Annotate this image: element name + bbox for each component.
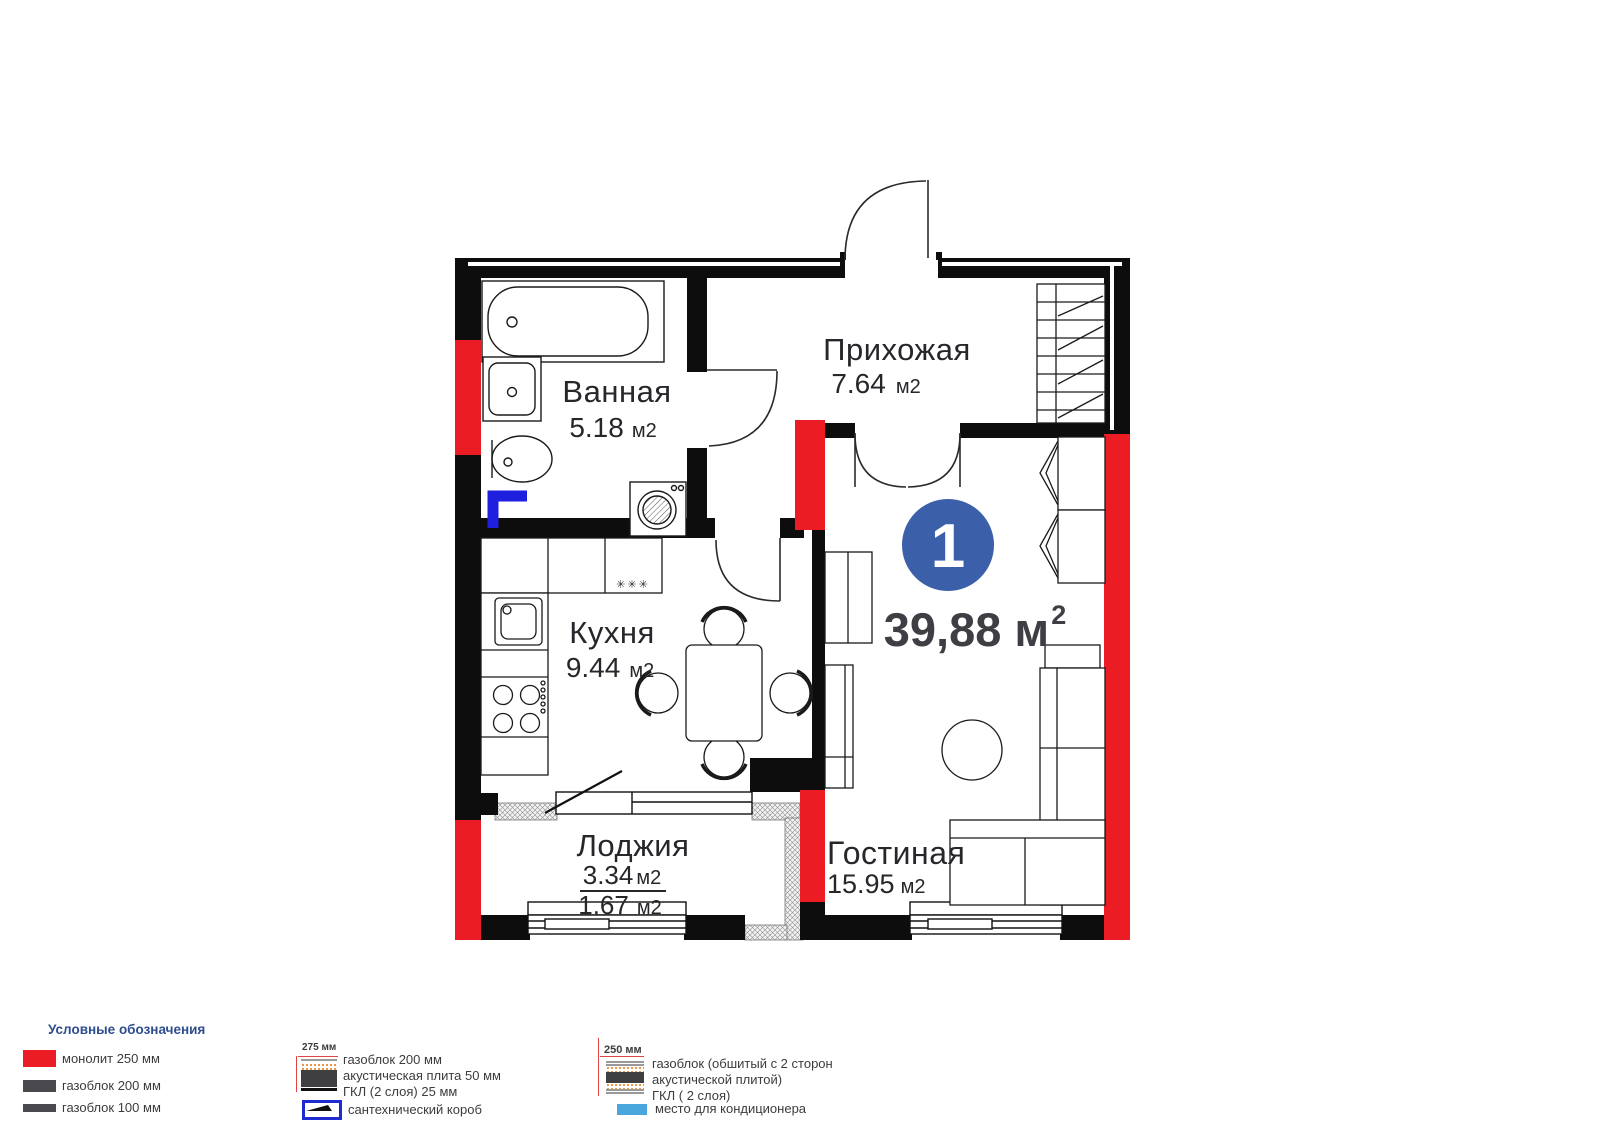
kitchen-vent-marker: ✳✳✳ bbox=[616, 579, 650, 591]
coffee-table-icon bbox=[942, 720, 1002, 780]
floorplan-page: Ванная 5.18м2 Прихожая 7.64м2 Кухня 9.44… bbox=[0, 0, 1600, 1131]
room-area-half-loggia: 1.67м2 bbox=[578, 890, 661, 920]
sink-icon bbox=[483, 357, 541, 421]
legend-ac-swatch bbox=[617, 1104, 647, 1115]
kitchen-sink-icon bbox=[495, 598, 542, 645]
kitchen-door bbox=[716, 538, 780, 601]
legend-item-gasblock100: газоблок 100 мм bbox=[62, 1100, 161, 1116]
floor-plan-svg: Ванная 5.18м2 Прихожая 7.64м2 Кухня 9.44… bbox=[0, 0, 1600, 1131]
legend-dim-line bbox=[600, 1056, 644, 1057]
legend-dim-275: 275 мм bbox=[302, 1040, 336, 1056]
legend-ac-label: место для кондиционера bbox=[655, 1101, 806, 1117]
total-area-label: 39,88 м2 bbox=[884, 600, 1066, 656]
room-label-kitchen: Кухня bbox=[569, 615, 654, 650]
legend-swatch-gasblock200 bbox=[23, 1080, 56, 1092]
legend-text-275: газоблок 200 мм акустическая плита 50 мм… bbox=[343, 1052, 501, 1100]
room-label-living: Гостиная bbox=[827, 835, 965, 871]
badge-number: 1 bbox=[931, 512, 965, 581]
closet-units-icon bbox=[1040, 437, 1105, 583]
washing-machine-icon bbox=[630, 482, 686, 536]
toilet-icon bbox=[492, 436, 552, 482]
shelf-cabinet-icon bbox=[825, 665, 853, 788]
living-room-double-door bbox=[855, 433, 960, 487]
room-area-bathroom: 5.18м2 bbox=[569, 412, 656, 443]
room-area-living: 15.95м2 bbox=[827, 869, 925, 899]
legend-sanitary-box-label: сантехнический короб bbox=[348, 1102, 482, 1118]
legend-item-monolith: монолит 250 мм bbox=[62, 1051, 160, 1067]
tv-cabinet-icon bbox=[825, 552, 872, 643]
dining-table bbox=[686, 645, 762, 741]
room-label-hallway: Прихожая bbox=[823, 332, 971, 367]
legend-dim-line bbox=[296, 1056, 297, 1092]
bathroom-door bbox=[707, 370, 777, 446]
room-area-kitchen: 9.44м2 bbox=[566, 652, 654, 683]
legend-swatch-monolith bbox=[23, 1050, 56, 1067]
room-area-loggia: 3.34м2 bbox=[583, 860, 661, 890]
legend-sanitary-box-icon bbox=[302, 1100, 342, 1120]
legend-dim-line bbox=[298, 1056, 338, 1057]
legend-layered-swatch-275 bbox=[301, 1059, 337, 1091]
hallway-wardrobe-icon bbox=[1037, 284, 1105, 423]
dining-set-icon bbox=[637, 608, 812, 779]
unit-badge: 1 bbox=[902, 499, 994, 591]
kitchen-fixtures bbox=[481, 538, 811, 778]
legend-item-gasblock200: газоблок 200 мм bbox=[62, 1078, 161, 1094]
legend-title: Условные обозначения bbox=[48, 1022, 205, 1037]
legend-dim-line bbox=[598, 1038, 599, 1096]
legend-layered-swatch-250 bbox=[606, 1061, 644, 1094]
legend-swatch-gasblock100 bbox=[23, 1104, 56, 1112]
entrance-door bbox=[845, 180, 928, 260]
bathtub-icon bbox=[482, 281, 664, 362]
living-room-window bbox=[910, 902, 1062, 934]
room-label-loggia: Лоджия bbox=[577, 828, 690, 863]
room-area-hallway: 7.64м2 bbox=[831, 368, 920, 399]
room-label-bathroom: Ванная bbox=[562, 374, 671, 409]
legend-text-250: газоблок (обшитый с 2 сторон акустическо… bbox=[652, 1056, 833, 1104]
